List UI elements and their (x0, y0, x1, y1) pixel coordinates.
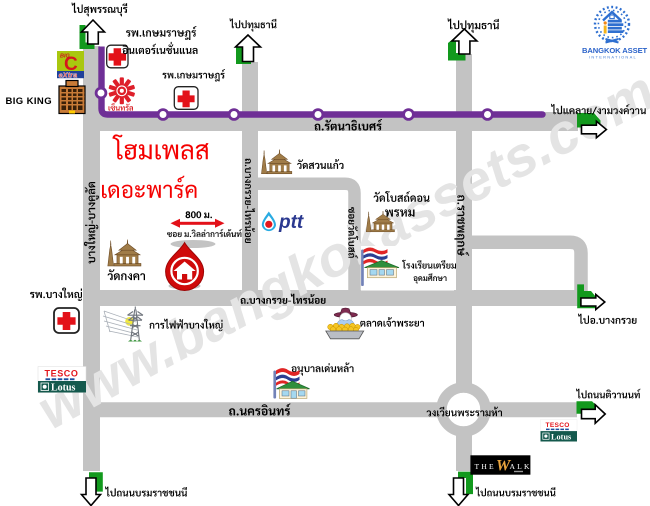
svg-text:TESCO: TESCO (45, 369, 79, 379)
svg-text:BIG KING: BIG KING (6, 96, 52, 107)
svg-text:Lotus: Lotus (551, 432, 572, 441)
svg-text:Lotus: Lotus (51, 383, 76, 394)
svg-text:ALK: ALK (510, 462, 532, 471)
svg-text:TESCO: TESCO (546, 422, 570, 429)
svg-text:ptt: ptt (278, 212, 304, 233)
svg-text:THE: THE (475, 462, 496, 471)
svg-text:INTERNATIONAL: INTERNATIONAL (589, 54, 637, 59)
svg-text:eXtra: eXtra (59, 70, 78, 79)
